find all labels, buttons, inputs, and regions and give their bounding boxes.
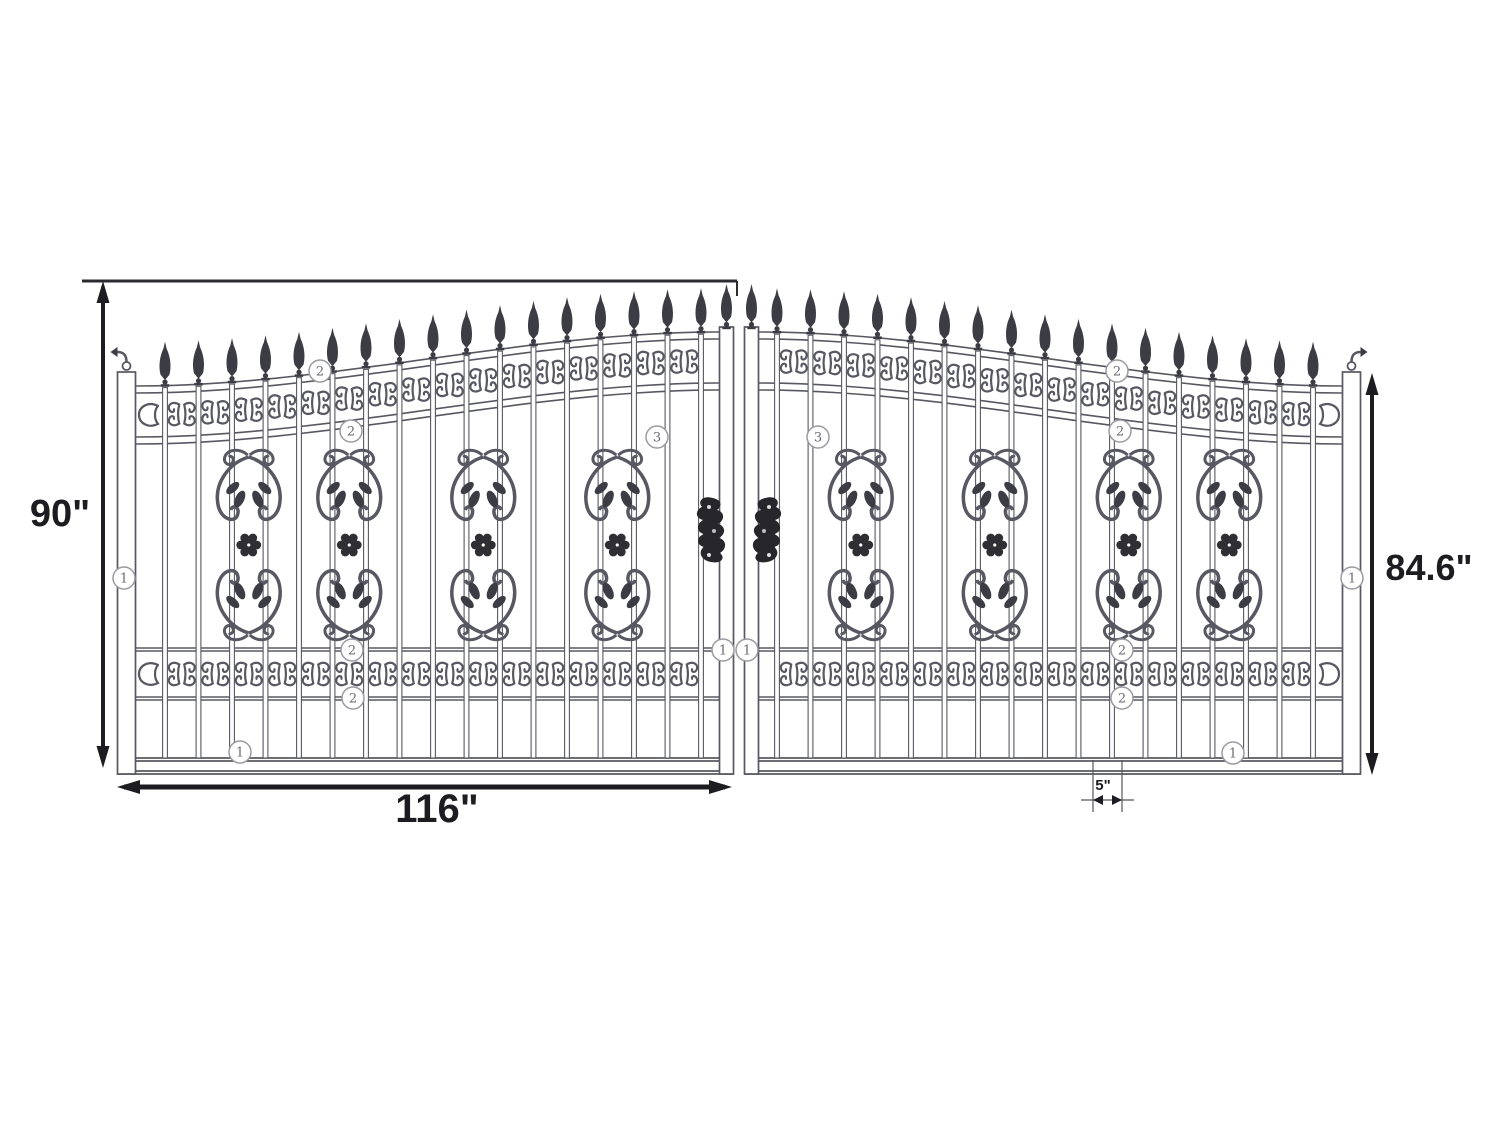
scroll-ornament-icon (881, 663, 907, 685)
scroll-ornament-icon (881, 357, 907, 379)
scroll-ornament-icon (370, 383, 396, 405)
scroll-ornament-icon (504, 365, 530, 387)
picket-spacing-dimension: 5" (1081, 760, 1134, 812)
part-marker: 1 (736, 639, 758, 661)
picket (1043, 360, 1048, 758)
scroll-ornament-icon (848, 663, 874, 685)
arrowhead-right-icon (709, 780, 732, 794)
scroll-ornament-icon (781, 663, 807, 685)
scroll-ornament-icon (1082, 663, 1108, 685)
left-gate-leaf (111, 284, 735, 774)
picket (531, 347, 536, 758)
spear-finial-icon (695, 288, 706, 333)
svg-text:1: 1 (236, 746, 244, 761)
picket (196, 386, 201, 758)
picket (397, 365, 402, 758)
spear-finial-icon (872, 294, 883, 339)
svg-text:2: 2 (1116, 425, 1124, 440)
c-scroll-icon (139, 663, 158, 685)
scroll-ornament-icon (915, 361, 941, 383)
arrowhead-up-icon (97, 281, 110, 303)
scroll-ornament-icon (915, 663, 941, 685)
spear-finial-icon (1140, 328, 1151, 373)
width-dimension: 116" (117, 780, 732, 831)
spear-finial-icon (972, 305, 983, 350)
leaf-width-label: 116" (395, 787, 479, 831)
scroll-ornament-icon (504, 663, 530, 685)
part-marker: 2 (1106, 360, 1128, 382)
hook-finial-icon (1348, 347, 1368, 370)
spear-finial-icon (939, 301, 950, 346)
svg-text:1: 1 (120, 572, 128, 587)
spear-finial-icon (561, 297, 572, 342)
picket (842, 337, 847, 758)
gate-technical-drawing: 90" 84.6" 116" 5" 1 2 2 3 2 2 1 1 1 3 2 … (0, 0, 1500, 1125)
arrowhead-right-icon (1112, 795, 1122, 805)
scroll-ornament-icon (336, 663, 362, 685)
part-marker: 2 (309, 360, 331, 382)
scroll-ornament-icon (1149, 663, 1175, 685)
scroll-ornament-icon (604, 663, 630, 685)
scroll-ornament-icon (236, 399, 262, 421)
picket (464, 356, 469, 758)
scroll-ornament-icon (1183, 395, 1209, 417)
scroll-ornament-icon (1283, 403, 1309, 425)
spear-finial-icon (226, 338, 237, 383)
arrowhead-left-icon (1093, 795, 1103, 805)
scroll-ornament-icon (202, 663, 228, 685)
picket (976, 351, 981, 758)
scroll-ornament-icon (1082, 383, 1108, 405)
spear-finial-icon (1307, 342, 1318, 387)
overall-height-label: 90" (30, 493, 90, 535)
spear-finial-icon (1173, 332, 1184, 377)
picket (1076, 365, 1081, 758)
scroll-ornament-icon (470, 663, 496, 685)
svg-text:1: 1 (1229, 747, 1237, 762)
leaf-height-label: 84.6" (1385, 547, 1472, 588)
scroll-ornament-icon (169, 663, 195, 685)
part-marker: 3 (646, 426, 668, 448)
scroll-ornament-icon (1015, 663, 1041, 685)
picket (1009, 356, 1014, 758)
svg-text:2: 2 (1113, 365, 1121, 380)
scroll-ornament-icon (537, 361, 563, 383)
scroll-ornament-icon (202, 401, 228, 423)
scroll-ornament-icon (671, 663, 697, 685)
scroll-ornament-icon (814, 663, 840, 685)
scroll-ornament-icon (303, 663, 329, 685)
picket (598, 340, 603, 758)
arrowhead-left-icon (117, 780, 140, 794)
medallion-ornament-icon (1198, 450, 1261, 639)
scroll-ornament-icon (269, 663, 295, 685)
part-marker: 2 (1111, 687, 1133, 709)
height-dimension-leaf: 84.6" (1366, 373, 1473, 775)
arrowhead-down-icon (97, 746, 110, 768)
c-scroll-icon (1320, 404, 1339, 426)
spear-finial-icon (905, 297, 916, 342)
part-marker: 1 (229, 741, 251, 763)
spear-finial-icon (746, 284, 757, 329)
scroll-ornament-icon (1015, 374, 1041, 396)
picket-spacing-label: 5" (1095, 777, 1110, 794)
svg-text:2: 2 (1118, 644, 1126, 659)
scroll-ornament-icon (336, 387, 362, 409)
part-marker: 1 (113, 567, 135, 589)
scroll-ornament-icon (671, 350, 697, 372)
picket (1177, 378, 1182, 758)
scroll-ornament-icon (982, 369, 1008, 391)
scroll-ornament-icon (403, 663, 429, 685)
scroll-ornament-icon (1283, 663, 1309, 685)
spear-finial-icon (628, 291, 639, 336)
scroll-ornament-icon (571, 357, 597, 379)
spear-finial-icon (662, 289, 673, 334)
picket (297, 378, 302, 758)
scroll-ornament-icon (604, 354, 630, 376)
spear-finial-icon (427, 314, 438, 359)
medallion-ornament-icon (586, 450, 649, 639)
scroll-ornament-icon (1149, 392, 1175, 414)
svg-text:2: 2 (316, 365, 324, 380)
spear-finial-icon (1207, 335, 1218, 380)
picket (632, 337, 637, 758)
part-marker: 2 (341, 639, 363, 661)
svg-text:2: 2 (348, 644, 356, 659)
drawing-canvas: 90" 84.6" 116" 5" 1 2 2 3 2 2 1 1 1 3 2 … (0, 0, 1500, 1125)
spear-finial-icon (159, 342, 170, 387)
picket (565, 343, 570, 758)
part-marker: 1 (1222, 742, 1244, 764)
spear-finial-icon (494, 305, 505, 350)
part-marker: 2 (340, 420, 362, 442)
spear-finial-icon (721, 284, 732, 329)
scroll-ornament-icon (169, 403, 195, 425)
scroll-ornament-icon (1250, 663, 1276, 685)
arrowhead-down-icon (1366, 753, 1379, 775)
picket (909, 343, 914, 758)
medallion-ornament-icon (217, 450, 280, 639)
scroll-ornament-icon (571, 663, 597, 685)
scroll-ornament-icon (1049, 663, 1075, 685)
scroll-ornament-icon (982, 663, 1008, 685)
scroll-ornament-icon (1250, 401, 1276, 423)
scroll-ornament-icon (781, 350, 807, 372)
spear-finial-icon (1240, 338, 1251, 383)
scroll-ornament-icon (1183, 663, 1209, 685)
scroll-ornament-icon (1116, 387, 1142, 409)
svg-text:3: 3 (814, 431, 822, 446)
scroll-ornament-icon (848, 354, 874, 376)
picket (431, 360, 436, 758)
spear-finial-icon (528, 301, 539, 346)
picket (1311, 388, 1316, 758)
scroll-ornament-icon (269, 395, 295, 417)
scroll-ornament-icon (370, 663, 396, 685)
spear-finial-icon (193, 340, 204, 385)
svg-text:1: 1 (1348, 572, 1356, 587)
part-marker: 2 (1111, 639, 1133, 661)
part-marker: 2 (1109, 420, 1131, 442)
spear-finial-icon (838, 291, 849, 336)
spear-finial-icon (595, 294, 606, 339)
spear-finial-icon (360, 323, 371, 368)
scroll-ornament-icon (638, 352, 664, 374)
svg-text:2: 2 (347, 425, 355, 440)
scroll-ornament-icon (1116, 663, 1142, 685)
spear-finial-icon (771, 288, 782, 333)
c-scroll-icon (1320, 663, 1339, 685)
scroll-ornament-icon (437, 374, 463, 396)
spear-finial-icon (1006, 310, 1017, 355)
spear-finial-icon (805, 289, 816, 334)
medallion-ornament-icon (829, 450, 892, 639)
medallion-ornament-icon (318, 450, 381, 639)
spear-finial-icon (1274, 340, 1285, 385)
scroll-ornament-icon (470, 369, 496, 391)
picket (665, 335, 670, 758)
scroll-ornament-icon (814, 352, 840, 374)
spear-finial-icon (1073, 319, 1084, 364)
svg-text:1: 1 (743, 644, 751, 659)
scroll-ornament-icon (437, 663, 463, 685)
medallion-ornament-icon (963, 450, 1026, 639)
part-marker: 1 (712, 639, 734, 661)
picket (1143, 374, 1148, 758)
picket (330, 374, 335, 758)
medallion-ornament-icon (1097, 450, 1160, 639)
scroll-ornament-icon (1216, 663, 1242, 685)
scroll-ornament-icon (638, 663, 664, 685)
part-marker: 2 (342, 687, 364, 709)
picket (498, 351, 503, 758)
svg-text:2: 2 (1118, 692, 1126, 707)
right-gate-leaf (744, 284, 1368, 774)
picket (875, 340, 880, 758)
svg-text:1: 1 (719, 644, 727, 659)
spear-finial-icon (293, 332, 304, 377)
picket (942, 347, 947, 758)
arrowhead-up-icon (1366, 373, 1379, 395)
scroll-ornament-icon (303, 392, 329, 414)
hook-finial-icon (111, 347, 131, 370)
picket (163, 388, 168, 758)
scroll-ornament-icon (236, 663, 262, 685)
medallion-ornament-icon (452, 450, 515, 639)
spear-finial-icon (1039, 314, 1050, 359)
c-scroll-icon (139, 404, 158, 426)
scroll-ornament-icon (1216, 399, 1242, 421)
spear-finial-icon (260, 335, 271, 380)
picket (1277, 386, 1282, 758)
part-marker: 3 (807, 426, 829, 448)
scroll-ornament-icon (537, 663, 563, 685)
scroll-ornament-icon (1049, 378, 1075, 400)
scroll-ornament-icon (948, 365, 974, 387)
scroll-ornament-icon (403, 378, 429, 400)
part-marker: 1 (1341, 567, 1363, 589)
picket (808, 335, 813, 758)
spear-finial-icon (394, 319, 405, 364)
scroll-ornament-icon (948, 663, 974, 685)
svg-text:2: 2 (349, 692, 357, 707)
spear-finial-icon (461, 310, 472, 355)
svg-text:3: 3 (653, 431, 661, 446)
